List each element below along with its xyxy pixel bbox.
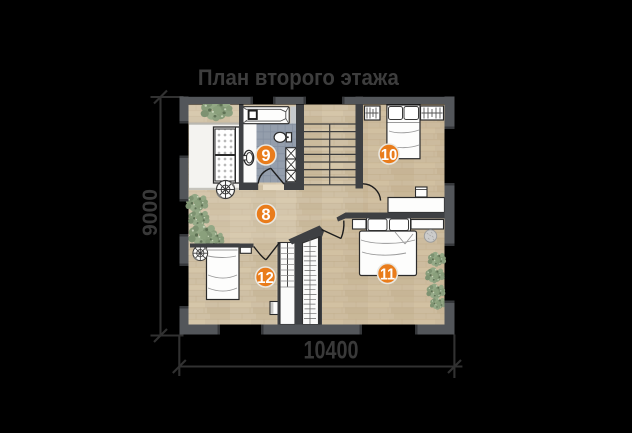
svg-text:8: 8 (261, 206, 270, 224)
svg-text:12: 12 (257, 270, 274, 287)
svg-text:9000: 9000 (139, 189, 162, 236)
svg-text:10: 10 (381, 147, 398, 164)
svg-text:11: 11 (380, 266, 395, 283)
svg-text:10400: 10400 (304, 336, 359, 364)
svg-text:План второго этажа: План второго этажа (198, 65, 399, 90)
svg-text:9: 9 (261, 147, 270, 165)
